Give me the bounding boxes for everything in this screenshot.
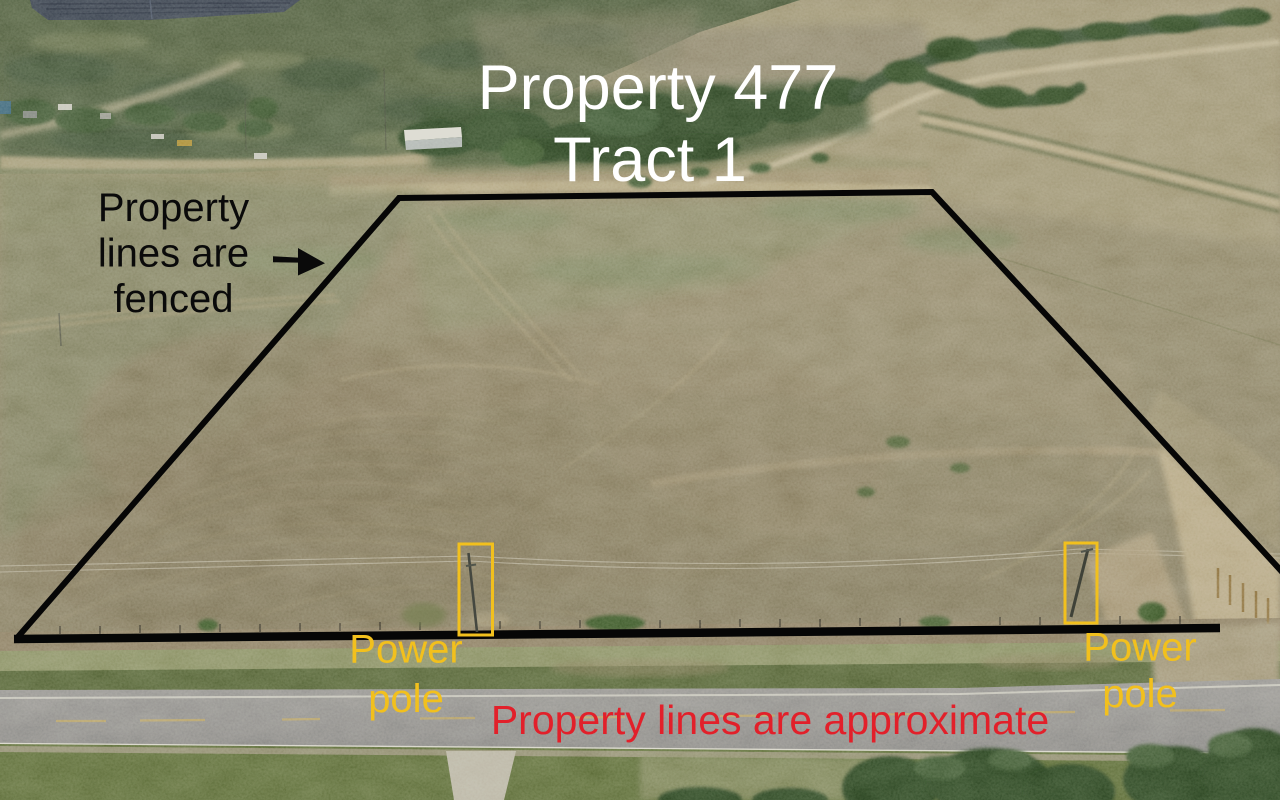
- svg-text:pole: pole: [1102, 672, 1178, 716]
- svg-text:Power: Power: [349, 628, 462, 672]
- svg-text:fenced: fenced: [113, 277, 233, 321]
- svg-text:Property lines are approximate: Property lines are approximate: [491, 697, 1049, 743]
- svg-text:Tract 1: Tract 1: [553, 125, 747, 195]
- svg-text:Property: Property: [98, 186, 249, 230]
- svg-text:Property 477: Property 477: [478, 53, 839, 123]
- svg-text:pole: pole: [368, 677, 444, 721]
- svg-text:lines are: lines are: [98, 232, 249, 276]
- svg-text:Power: Power: [1083, 626, 1196, 670]
